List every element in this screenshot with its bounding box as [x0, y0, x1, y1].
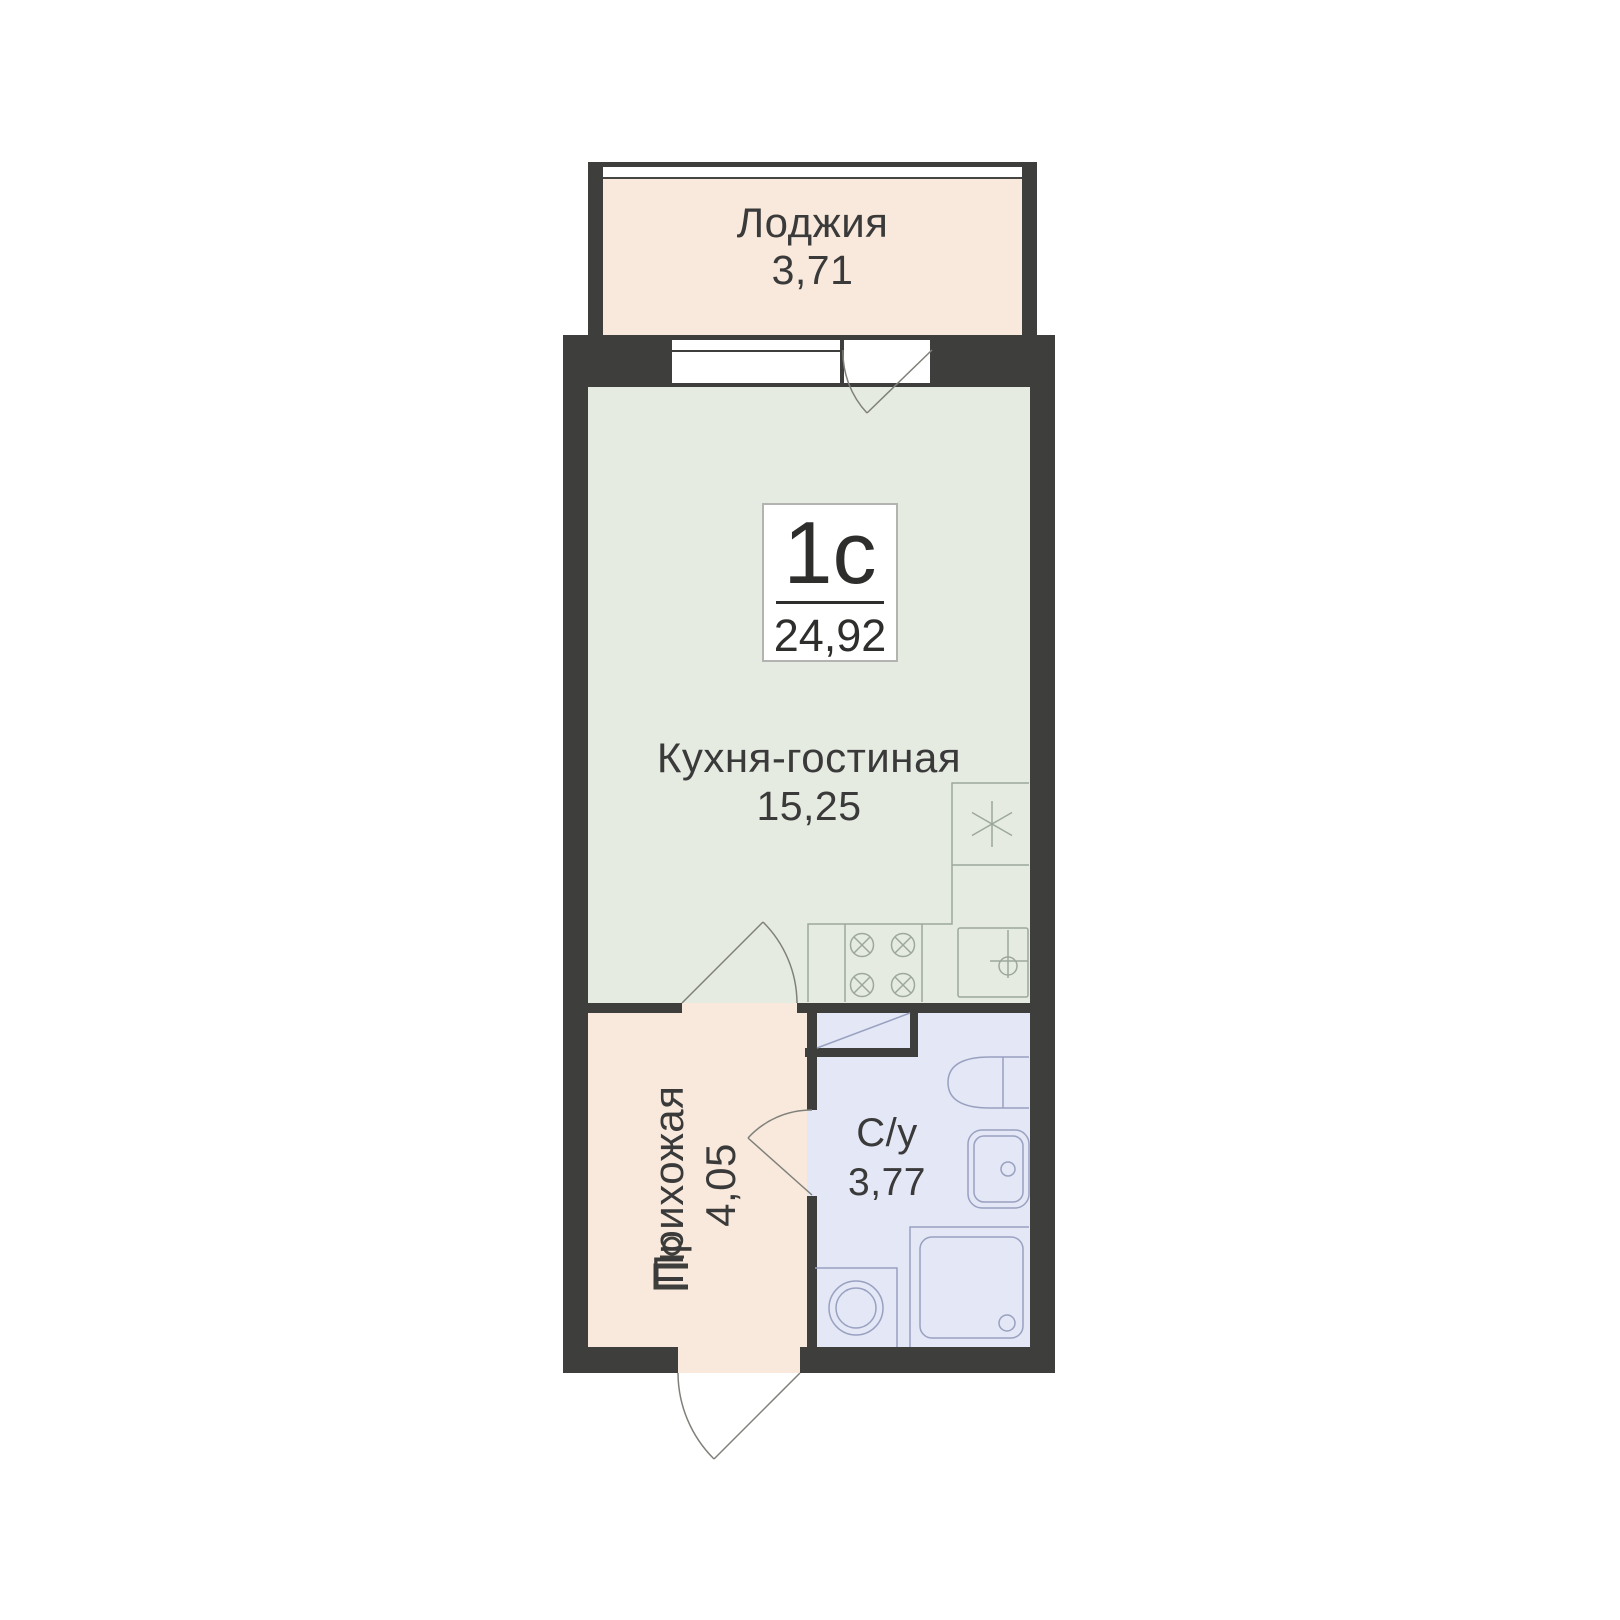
unit-total-area: 24,92 — [764, 609, 896, 663]
kitchen-area-label: 15,25 — [588, 783, 1030, 829]
unit-info-box: 1с 24,92 — [762, 503, 898, 662]
bathroom-area-label: 3,77 — [817, 1160, 957, 1206]
vent-duct-icon — [817, 1013, 910, 1048]
bathroom-door-swing-icon — [748, 1110, 812, 1195]
bathroom-name-label: С/у — [817, 1110, 957, 1156]
washing-machine-icon — [815, 1268, 897, 1347]
loggia-area-label: 3,71 — [603, 247, 1022, 293]
hallway-name-label: Прихожая — [643, 1055, 695, 1315]
loggia-name-label: Лоджия — [603, 200, 1022, 246]
washbasin-icon — [968, 1130, 1029, 1208]
hallway-label: Прихожая 4,05 — [643, 1055, 747, 1315]
balcony-door-swing-icon — [843, 350, 932, 413]
unit-type-label: 1с — [764, 501, 896, 605]
toilet-icon — [948, 1057, 1029, 1108]
entrance-door-swing-icon — [678, 1373, 800, 1459]
shower-icon — [910, 1227, 1029, 1347]
floor-plan: Лоджия 3,71 Кухня-гостиная 15,25 Прихожа… — [0, 0, 1620, 1620]
sink-cabinet-icon — [958, 928, 1028, 997]
kitchen-door-swing-icon — [682, 922, 797, 1003]
kitchen-name-label: Кухня-гостиная — [588, 735, 1030, 781]
hallway-area-label: 4,05 — [695, 1055, 747, 1315]
unit-divider — [776, 601, 884, 604]
stove-icon — [851, 934, 915, 997]
